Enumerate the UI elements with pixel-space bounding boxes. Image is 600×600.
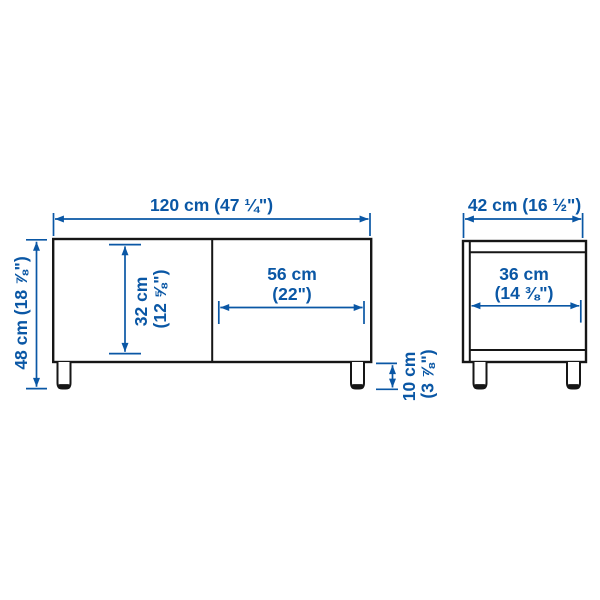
dim-door-width: 56 cm (22") xyxy=(219,264,364,324)
interior-height-in: (12 ⅝") xyxy=(150,270,170,329)
interior-depth-cm: 36 cm xyxy=(499,264,549,284)
leg-height-in: (3 ⅞") xyxy=(418,349,438,398)
product-dimension-image: 120 cm (47 ¼") 48 cm (18 ⅞") 32 cm (12 ⅝… xyxy=(0,0,600,600)
side-left-leg xyxy=(474,362,487,389)
front-left-leg xyxy=(58,362,71,389)
overall-width-label: 120 cm (47 ¼") xyxy=(150,195,273,215)
overall-depth-label: 42 cm (16 ½") xyxy=(468,195,581,215)
overall-height-label: 48 cm (18 ⅞") xyxy=(11,256,31,369)
front-right-leg xyxy=(351,362,364,389)
door-width-cm: 56 cm xyxy=(267,264,317,284)
leg-height-label: 10 cm (3 ⅞") xyxy=(399,347,438,402)
leg-height-cm: 10 cm xyxy=(399,352,419,402)
side-right-leg xyxy=(567,362,580,389)
interior-height-label: 32 cm (12 ⅝") xyxy=(131,270,170,329)
dim-overall-depth: 42 cm (16 ½") xyxy=(464,195,583,238)
interior-height-cm: 32 cm xyxy=(131,277,151,327)
dim-interior-height: 32 cm (12 ⅝") xyxy=(109,245,170,354)
dim-overall-width: 120 cm (47 ¼") xyxy=(54,195,371,236)
front-view xyxy=(53,239,371,389)
dim-interior-depth: 36 cm (14 ⅜") xyxy=(472,264,581,323)
interior-depth-in: (14 ⅜") xyxy=(495,283,554,303)
dimension-diagram: 120 cm (47 ¼") 48 cm (18 ⅞") 32 cm (12 ⅝… xyxy=(0,0,600,600)
dim-overall-height: 48 cm (18 ⅞") xyxy=(11,240,47,389)
dim-leg-height: 10 cm (3 ⅞") xyxy=(376,347,438,402)
door-width-in: (22") xyxy=(272,284,311,304)
